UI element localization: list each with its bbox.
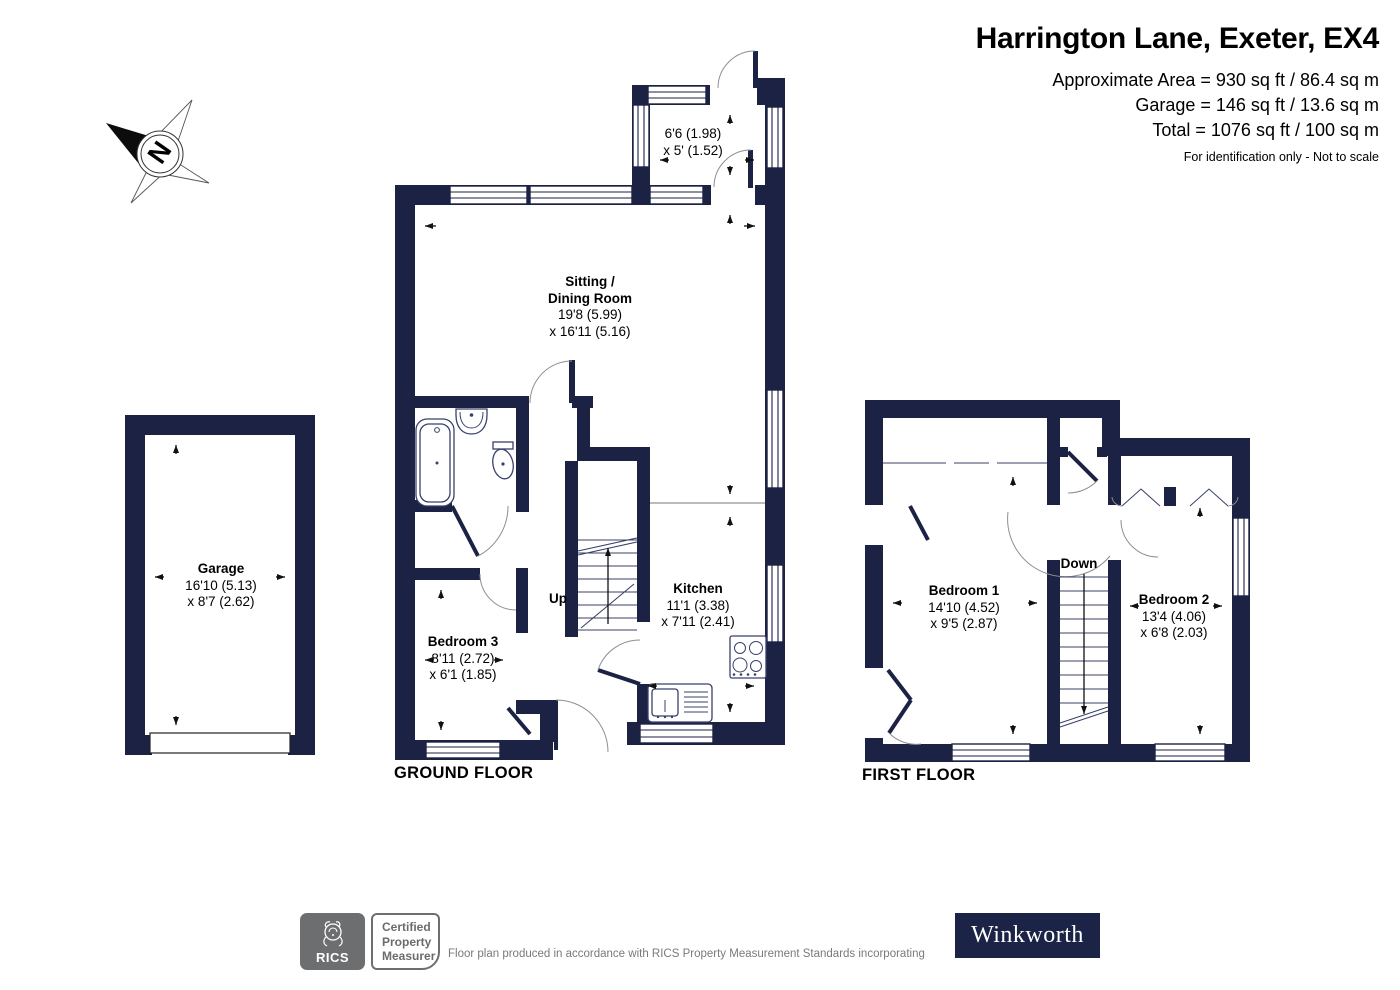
rics-wordmark: RICS xyxy=(316,951,349,964)
disclaimer: Floor plan produced in accordance with R… xyxy=(448,916,968,990)
sitting-dining-label: Sitting / Dining Room 19'8 (5.99) x 16'1… xyxy=(548,274,632,340)
page-title: Harrington Lane, Exeter, EX4 xyxy=(976,22,1379,56)
staircase-down xyxy=(1060,574,1108,727)
stairs-down-label: Down xyxy=(1061,556,1098,571)
first-floor-plan xyxy=(864,400,1250,762)
total-area-line: Total = 1076 sq ft / 100 sq m xyxy=(976,118,1379,143)
bathtub-icon xyxy=(416,419,454,506)
kitchen-label: Kitchen 11'1 (3.38) x 7'11 (2.41) xyxy=(661,581,735,631)
rics-lion-icon xyxy=(315,919,351,951)
first-floor-label: FIRST FLOOR xyxy=(862,766,975,785)
floorplan-page: N Harrington Lane, Exeter, EX4 Approxima… xyxy=(0,0,1400,990)
scale-note: For identification only - Not to scale xyxy=(976,150,1379,164)
garage-door xyxy=(150,733,290,753)
stairs-up-label: Up xyxy=(549,591,567,606)
kitchen-sink-icon xyxy=(648,684,712,722)
bedroom3-label: Bedroom 3 8'11 (2.72) x 6'1 (1.85) xyxy=(428,634,499,684)
garage-area-line: Garage = 146 sq ft / 13.6 sq m xyxy=(976,93,1379,118)
header: Harrington Lane, Exeter, EX4 Approximate… xyxy=(976,22,1379,164)
rics-logo: RICS xyxy=(300,913,365,970)
hob-icon xyxy=(730,636,766,678)
porch-label: 6'6 (1.98) x 5' (1.52) xyxy=(663,126,723,159)
winkworth-logo: Winkworth xyxy=(955,913,1100,958)
garage-label: Garage 16'10 (5.13) x 8'7 (2.62) xyxy=(185,561,257,611)
bedroom2-label: Bedroom 2 13'4 (4.06) x 6'8 (2.03) xyxy=(1139,592,1210,642)
staircase-up xyxy=(578,538,637,630)
disclaimer-line1: Floor plan produced in accordance with R… xyxy=(448,947,968,963)
toilet-icon xyxy=(490,442,516,481)
approx-area-line: Approximate Area = 930 sq ft / 86.4 sq m xyxy=(976,68,1379,93)
sink-basin-icon xyxy=(456,409,487,434)
bedroom1-label: Bedroom 1 14'10 (4.52) x 9'5 (2.87) xyxy=(928,583,1000,633)
certified-property-measurer-badge: Certified Property Measurer xyxy=(371,913,440,970)
ground-floor-label: GROUND FLOOR xyxy=(394,764,533,783)
